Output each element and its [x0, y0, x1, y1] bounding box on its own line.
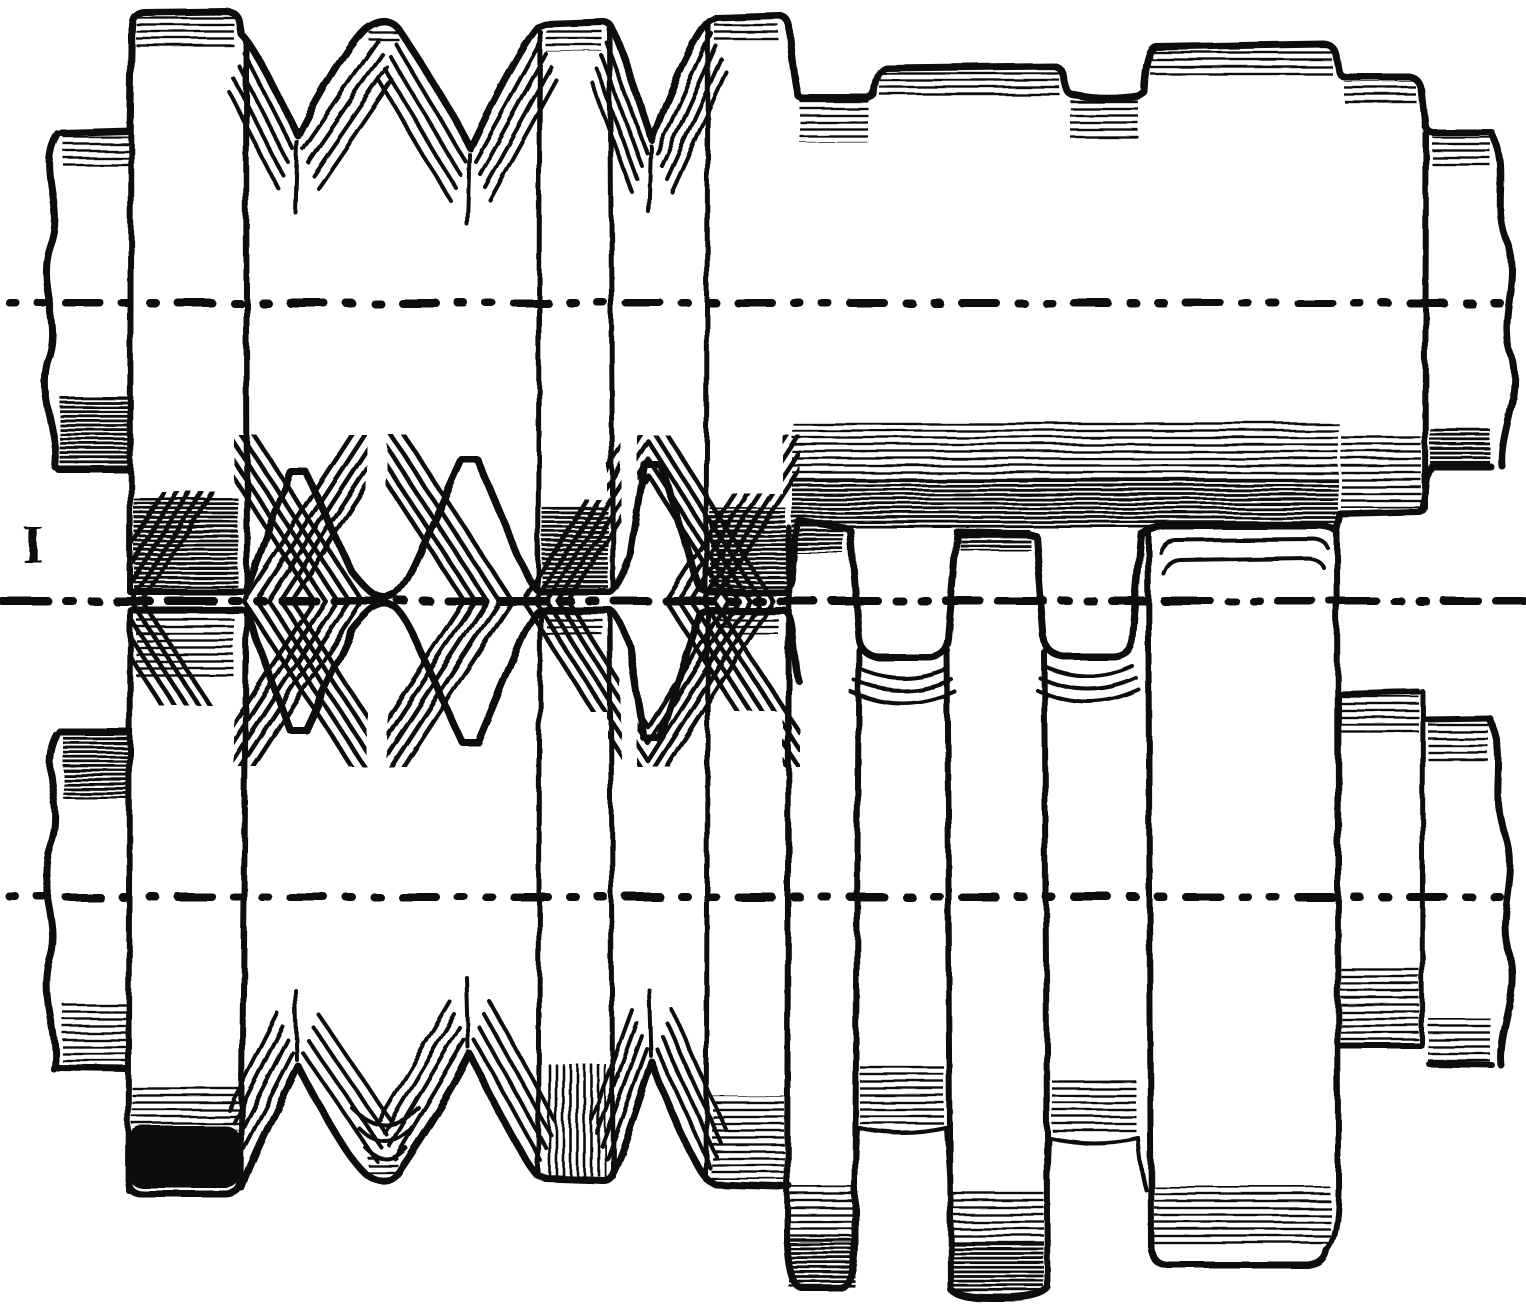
step-hatch	[1341, 696, 1419, 734]
roll-body-hatch	[792, 420, 1338, 482]
collar-top-hatch	[714, 19, 778, 43]
shaft-hatch	[63, 735, 129, 799]
box-collar-bottom-hatch	[1154, 1186, 1330, 1244]
shaft-hatch	[60, 396, 130, 466]
collar-face	[543, 712, 607, 1058]
box-collar-top-hatch	[1150, 48, 1332, 76]
collar-bottom-hatch	[544, 1064, 606, 1176]
shaft-hatch	[1432, 136, 1490, 166]
engraving-art: I	[2, 11, 1524, 1298]
shaft-bottom-edge	[1429, 1064, 1492, 1065]
collar-bottom-hatch	[132, 1086, 240, 1130]
shaft-hatch	[62, 1002, 128, 1068]
shaft-bottom-edge	[58, 1068, 126, 1069]
collar-top-inner-arc	[1160, 539, 1328, 552]
box-collar-bottom-hatch	[789, 1238, 855, 1288]
collar-edge	[246, 40, 247, 590]
box-collar-edge	[947, 650, 951, 1290]
section-mark-label: I	[22, 514, 43, 574]
groove-arch	[858, 1128, 946, 1133]
groove-arch-hatch	[860, 1066, 944, 1126]
shaft-top-edge	[1425, 718, 1490, 719]
shaft-hatch	[1428, 1018, 1490, 1064]
collar-edge	[130, 28, 131, 592]
box-collar-bottom-hatch	[952, 1192, 1044, 1244]
collar-bottom-hatch	[134, 498, 238, 592]
groove-arch-end	[1138, 1138, 1146, 1190]
collar-edge	[610, 610, 613, 1176]
box-collar-bottom	[1151, 1250, 1326, 1265]
engraving-page: I	[0, 0, 1526, 1304]
collar-face	[711, 28, 783, 494]
groove-arch-hatch	[1052, 1076, 1136, 1136]
step-edge	[1338, 694, 1339, 1044]
collar-top-inner-arc	[1164, 558, 1324, 574]
collar-bottom-dark	[128, 1126, 240, 1188]
shaft-break-line	[45, 134, 58, 467]
box-collar-top-hatch	[880, 70, 1060, 98]
opening-arc	[854, 680, 952, 691]
collar-top-hatch	[546, 26, 602, 52]
roll-pass-engraving: I	[0, 0, 1526, 1304]
opening-arc	[1044, 666, 1132, 676]
slope-hatch-line	[657, 33, 711, 153]
valley-stub	[467, 154, 469, 224]
step-edge	[1422, 692, 1423, 1044]
opening-arc	[851, 692, 955, 704]
slope-hatch-line	[657, 1049, 711, 1169]
valley-stub	[295, 990, 297, 1060]
collar-top-hatch	[136, 15, 234, 49]
collar-top-hatch	[136, 612, 234, 678]
collar-face	[543, 34, 607, 500]
shaft-hatch	[63, 136, 129, 166]
neck-hatch	[800, 101, 868, 143]
step-hatch	[1341, 966, 1419, 1042]
shaft-break-line	[46, 735, 57, 1069]
valley-stub	[649, 146, 651, 212]
collar-bottom-hatch	[712, 1096, 784, 1180]
pointed-collar-tip-hatch	[368, 26, 398, 44]
box-collar-edge	[855, 650, 859, 1188]
box-collar-edge	[1044, 652, 1048, 1288]
step-hatch	[1344, 81, 1416, 105]
valley-stub	[295, 142, 297, 212]
box-collar-bottom-hatch	[789, 1186, 855, 1242]
valley-stub	[649, 990, 651, 1056]
valley-stub	[467, 978, 469, 1048]
collar-bottom-hatch	[710, 508, 786, 590]
collar-bottom-hatch	[542, 506, 608, 590]
step-edge	[1425, 133, 1426, 508]
box-collar-bottom-hatch	[952, 1242, 1044, 1292]
shaft-hatch	[1430, 428, 1490, 468]
box-collar-edge	[1148, 532, 1151, 1250]
collar-face	[136, 34, 234, 492]
opening-arc	[1037, 690, 1139, 702]
slope-hatch-line	[239, 1040, 288, 1136]
collar-edge	[610, 30, 613, 590]
step-top-edge	[1340, 692, 1418, 694]
opening-arc	[858, 668, 948, 678]
neck-hatch	[1070, 99, 1138, 139]
box-collar-edge	[787, 528, 789, 1244]
collar-top-hatch	[716, 612, 778, 634]
step-bottom-hatch	[1341, 432, 1421, 508]
collar-top-hatch	[546, 612, 602, 636]
groove-arch	[1050, 1138, 1138, 1143]
opening-arc	[1040, 678, 1136, 689]
shaft-break-line	[1489, 719, 1512, 1065]
collar-edge	[538, 32, 540, 590]
roll-body-hatch	[792, 480, 1338, 528]
shaft-hatch	[1428, 720, 1488, 764]
collar-edge	[706, 24, 708, 590]
groove-arch-end	[1048, 1138, 1050, 1190]
